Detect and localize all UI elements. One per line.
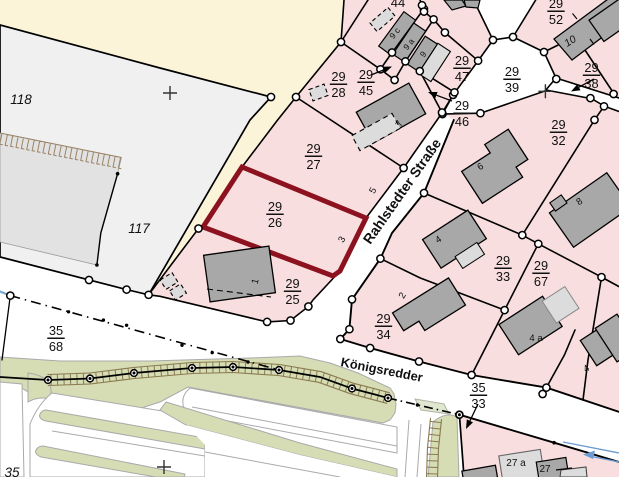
svg-text:33: 33 <box>496 269 510 284</box>
svg-text:29: 29 <box>549 0 563 11</box>
svg-text:28: 28 <box>331 85 345 100</box>
svg-text:27: 27 <box>306 157 320 172</box>
svg-text:44: 44 <box>391 0 405 10</box>
svg-text:46: 46 <box>455 114 469 129</box>
svg-text:117: 117 <box>128 221 150 236</box>
svg-text:67: 67 <box>534 274 548 289</box>
svg-text:29: 29 <box>534 258 548 273</box>
svg-text:34: 34 <box>376 327 390 342</box>
svg-text:29: 29 <box>496 253 510 268</box>
svg-text:4 a: 4 a <box>529 333 543 344</box>
svg-text:29: 29 <box>306 141 320 156</box>
svg-text:29: 29 <box>331 69 345 84</box>
svg-text:27: 27 <box>539 464 551 475</box>
svg-text:118: 118 <box>10 92 32 107</box>
svg-text:25: 25 <box>285 292 299 307</box>
svg-text:35: 35 <box>4 465 20 477</box>
svg-text:29: 29 <box>584 60 598 75</box>
svg-text:52: 52 <box>549 12 563 27</box>
svg-text:29: 29 <box>268 199 282 214</box>
svg-text:26: 26 <box>268 215 282 230</box>
svg-text:29: 29 <box>551 117 565 132</box>
svg-text:27 a: 27 a <box>506 458 526 469</box>
svg-text:35: 35 <box>49 323 63 338</box>
svg-text:29: 29 <box>505 64 519 79</box>
svg-text:29: 29 <box>455 53 469 68</box>
svg-text:68: 68 <box>49 339 63 354</box>
svg-text:39: 39 <box>505 80 519 95</box>
svg-text:32: 32 <box>551 133 565 148</box>
svg-text:29: 29 <box>285 276 299 291</box>
svg-text:45: 45 <box>359 83 373 98</box>
svg-text:35: 35 <box>471 380 485 395</box>
svg-text:29: 29 <box>376 311 390 326</box>
svg-text:29: 29 <box>455 98 469 113</box>
svg-text:33: 33 <box>471 396 485 411</box>
svg-text:47: 47 <box>455 69 469 84</box>
